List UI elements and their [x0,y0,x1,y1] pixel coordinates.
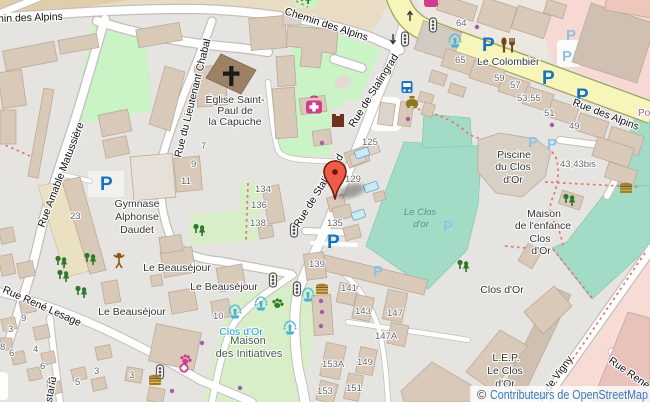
svg-text:Le Clos: Le Clos [404,207,436,218]
svg-text:4: 4 [33,344,38,355]
svg-text:10: 10 [213,311,224,322]
svg-text:129: 129 [345,174,361,185]
svg-text:4: 4 [46,376,51,387]
svg-text:Po: Po [638,108,650,119]
svg-text:P: P [547,136,557,153]
svg-text:8: 8 [0,342,5,353]
svg-text:©: © [477,388,487,402]
svg-text:136: 136 [251,200,267,211]
svg-text:139: 139 [309,259,325,270]
svg-text:d'Or: d'Or [531,245,551,257]
svg-text:P: P [566,27,576,44]
svg-text:Maison: Maison [527,208,561,220]
svg-text:6: 6 [40,361,45,372]
svg-text:53,55: 53,55 [517,93,541,104]
svg-text:65: 65 [455,55,466,66]
svg-text:Daudet: Daudet [120,224,154,236]
svg-text:Le Beauséjour: Le Beauséjour [98,306,166,318]
svg-text:Le Beauséjour: Le Beauséjour [190,281,258,293]
svg-text:151: 151 [346,383,362,394]
svg-text:23: 23 [70,211,81,222]
svg-text:153: 153 [317,386,333,397]
svg-text:Maison: Maison [230,335,265,347]
svg-text:147A: 147A [375,331,398,342]
svg-text:P: P [542,68,555,89]
svg-text:57: 57 [510,80,521,91]
svg-text:Piscine: Piscine [497,149,531,161]
svg-text:5: 5 [75,377,80,388]
svg-text:la Capuche: la Capuche [208,116,261,128]
svg-text:7: 7 [201,141,206,152]
svg-text:P: P [482,35,495,56]
svg-text:Le Colombier: Le Colombier [477,56,540,68]
svg-text:3: 3 [94,366,99,377]
svg-text:Le Beauséjour: Le Beauséjour [143,262,211,274]
svg-text:9: 9 [21,313,26,324]
svg-text:des Initiatives: des Initiatives [216,348,283,360]
svg-text:153A: 153A [322,359,345,370]
svg-text:134: 134 [255,184,271,195]
svg-text:3: 3 [129,370,134,381]
svg-text:3: 3 [8,324,13,335]
svg-text:P: P [373,263,383,280]
svg-text:Clos d'Or: Clos d'Or [480,284,524,296]
svg-text:64: 64 [456,18,467,29]
svg-text:P: P [327,232,340,253]
svg-text:135: 135 [327,218,343,229]
svg-text:147: 147 [387,308,403,319]
svg-text:d'or: d'or [413,219,429,230]
svg-text:Contributeurs de OpenStreetMap: Contributeurs de OpenStreetMap [490,388,648,402]
svg-text:141: 141 [341,283,357,294]
svg-text:6: 6 [9,348,14,359]
svg-text:143: 143 [355,306,371,317]
svg-text:49: 49 [569,121,580,132]
svg-text:L.E.P.: L.E.P. [492,352,519,364]
svg-text:P: P [562,48,572,65]
svg-text:43,43bis: 43,43bis [560,159,596,170]
svg-text:125: 125 [362,137,378,148]
svg-text:d'Or: d'Or [503,174,523,186]
svg-text:P: P [100,174,113,195]
svg-text:51: 51 [544,108,555,119]
svg-text:Le Clos: Le Clos [487,365,523,377]
svg-text:11: 11 [181,176,191,187]
svg-text:du Clos: du Clos [495,161,531,173]
svg-text:Alphonse: Alphonse [115,211,159,223]
svg-text:P: P [443,218,453,235]
svg-text:9: 9 [191,159,196,170]
svg-text:Gymnase: Gymnase [115,198,160,210]
svg-text:Clos: Clos [529,233,550,245]
svg-text:149: 149 [357,357,373,368]
svg-text:de l'enfance: de l'enfance [515,220,571,232]
svg-text:59: 59 [494,73,505,84]
svg-text:138: 138 [250,218,266,229]
